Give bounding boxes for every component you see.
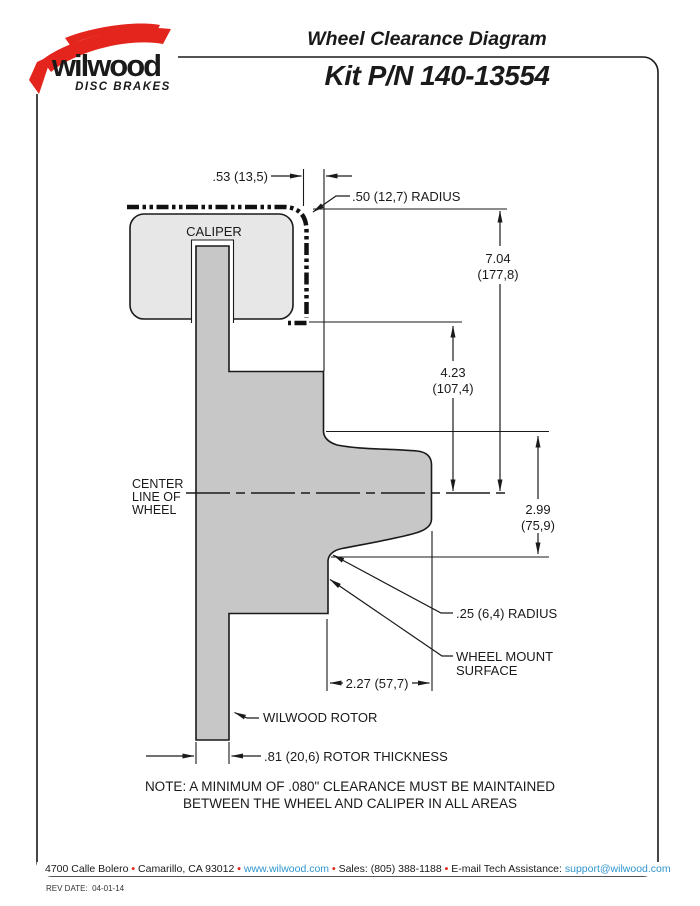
clearance-note-line2: BETWEEN THE WHEEL AND CALIPER IN ALL ARE… — [60, 796, 640, 813]
dim-height-inner: 4.23 — [440, 365, 465, 380]
outer-radius-label: .50 (12,7) RADIUS — [352, 189, 461, 204]
inner-radius-label: .25 (6,4) RADIUS — [456, 606, 557, 621]
kit-part-number: Kit P/N 140-13554 — [287, 60, 587, 92]
footer-address: 4700 Calle Bolero — [45, 863, 128, 875]
dim-hub-height: 2.99 — [525, 502, 550, 517]
wheel-clearance-drawing: CALIPER .53 (13,5) .50 (12,7) RADIUS 7.0… — [0, 0, 700, 906]
dim-hub-height-mm: (75,9) — [521, 518, 555, 533]
wilwood-logo-art: wilwood DISC BRAKES — [8, 18, 178, 94]
logo-brand-text: wilwood — [51, 48, 160, 83]
dim-height-total-mm: (177,8) — [477, 267, 518, 282]
footer: 4700 Calle Bolero • Camarillo, CA 93012 … — [37, 862, 658, 876]
rev-date: REV DATE: 04-01-14 — [46, 884, 124, 893]
wilwood-logo: wilwood DISC BRAKES — [8, 18, 178, 94]
page-title: Wheel Clearance Diagram — [277, 28, 577, 51]
rotor-leader — [235, 713, 260, 719]
rotor-label: WILWOOD ROTOR — [263, 710, 377, 725]
logo-tagline: DISC BRAKES — [75, 81, 171, 93]
inner-radius-leader — [333, 555, 453, 613]
clearance-note: NOTE: A MINIMUM OF .080" CLEARANCE MUST … — [60, 779, 640, 812]
mount-surface-label-2: SURFACE — [456, 663, 518, 678]
footer-city: Camarillo, CA 93012 — [138, 863, 234, 875]
caliper-label: CALIPER — [186, 224, 242, 239]
clearance-note-line1: NOTE: A MINIMUM OF .080" CLEARANCE MUST … — [60, 779, 640, 796]
footer-email-label: E-mail Tech Assistance: — [451, 863, 562, 875]
page: CALIPER .53 (13,5) .50 (12,7) RADIUS 7.0… — [0, 0, 700, 906]
centerline-label-3: WHEEL — [132, 503, 177, 517]
outer-radius-leader — [313, 196, 350, 212]
centerline-label-2: LINE OF — [132, 490, 181, 504]
centerline-label-1: CENTER — [132, 477, 183, 491]
footer-website-link[interactable]: www.wilwood.com — [244, 863, 329, 875]
dim-mount-depth: 2.27 (57,7) — [346, 676, 409, 691]
dim-height-total: 7.04 — [485, 251, 510, 266]
dim-rotor-thickness: .81 (20,6) ROTOR THICKNESS — [264, 749, 448, 764]
dim-offset-label: .53 (13,5) — [212, 169, 268, 184]
footer-bullet-icon: • — [237, 863, 241, 875]
footer-sales-phone: Sales: (805) 388-1188 — [339, 863, 442, 875]
footer-email-link[interactable]: support@wilwood.com — [565, 863, 671, 875]
footer-bullet-icon: • — [445, 863, 449, 875]
footer-bullet-icon: • — [131, 863, 135, 875]
mount-surface-label-1: WHEEL MOUNT — [456, 649, 553, 664]
logo-brush-tail-icon — [29, 55, 52, 94]
mount-surface-leader — [330, 580, 453, 657]
dim-height-inner-mm: (107,4) — [432, 381, 473, 396]
footer-contact-strip: 4700 Calle Bolero • Camarillo, CA 93012 … — [37, 862, 679, 876]
footer-bullet-icon: • — [332, 863, 336, 875]
